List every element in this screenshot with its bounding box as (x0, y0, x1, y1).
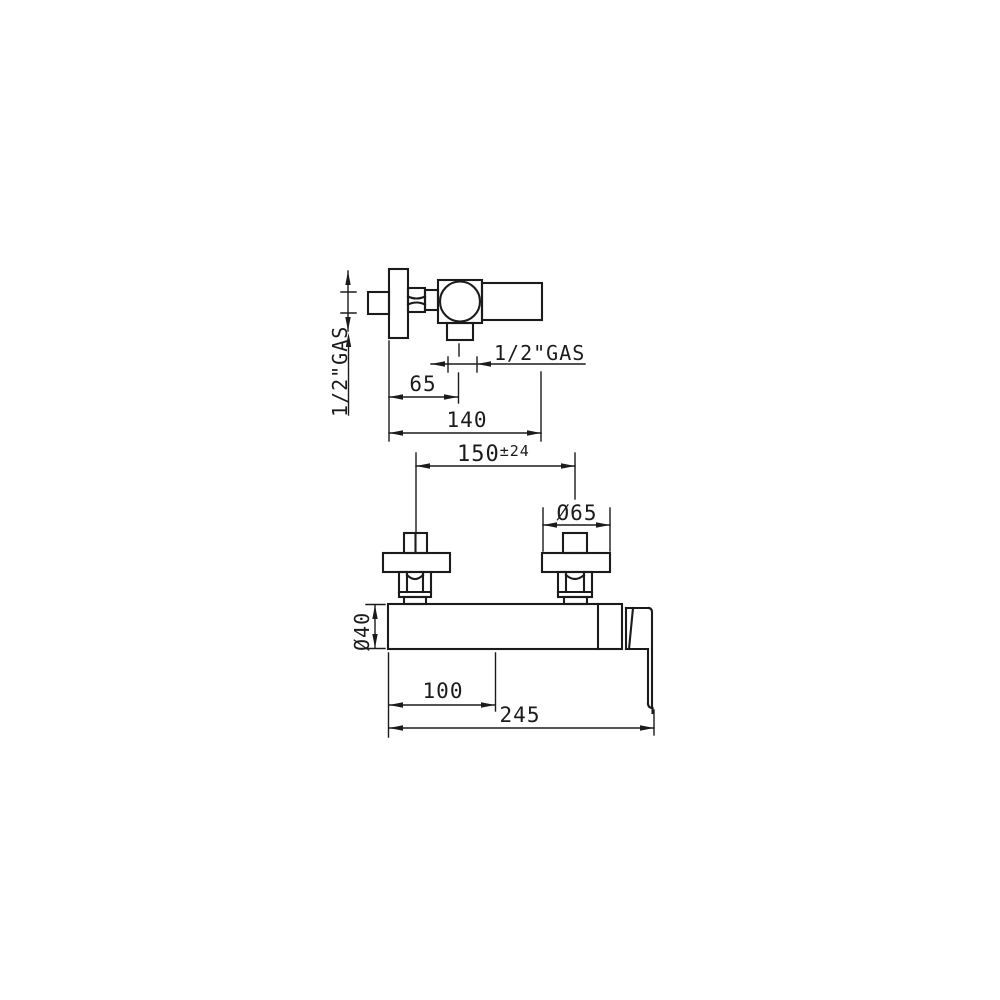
right-mounting-flange (542, 553, 610, 572)
spacer (425, 290, 438, 310)
dimension-150: 150±24 (416, 442, 575, 533)
lever-handle (626, 608, 653, 713)
wall-plate (389, 269, 408, 338)
control-knob-circle (440, 282, 480, 322)
valve-body-extension (482, 283, 542, 320)
outlet-port (447, 323, 473, 340)
handle-wedge-line (629, 608, 633, 649)
right-hex-nut-facet (566, 575, 584, 579)
left-hex-nut-facet (407, 575, 423, 579)
dimension-inlet-gas: 1/2"GAS (328, 271, 356, 417)
drawing-canvas: 1/2"GAS 1/2"GAS 65 140 (0, 0, 1000, 1000)
dim-140-label: 140 (447, 408, 488, 432)
right-hex-nut (558, 572, 592, 597)
technical-drawing: 1/2"GAS 1/2"GAS 65 140 (0, 0, 1000, 1000)
dim-100-label: 100 (423, 679, 464, 703)
inlet-gas-label: 1/2"GAS (328, 326, 352, 417)
outlet-gas-label: 1/2"GAS (494, 341, 585, 365)
dim-65-label: 65 (409, 372, 436, 396)
left-hex-nut (399, 572, 431, 597)
dim-flange-diameter-label: Ø65 (557, 501, 598, 525)
connector-nut (408, 288, 425, 312)
dimension-outlet-gas: 1/2"GAS (431, 341, 585, 372)
dimension-flange-diameter: Ø65 (543, 501, 610, 551)
left-mounting-flange (383, 553, 450, 572)
mixer-body (388, 604, 622, 649)
side-view: 1/2"GAS 1/2"GAS 65 140 (328, 269, 585, 441)
right-inlet-stub (563, 533, 587, 553)
dim-150-label: 150±24 (457, 442, 530, 467)
connector-nut-facet (408, 303, 425, 305)
connector-nut-facet (408, 297, 425, 299)
inlet-stub (368, 292, 389, 314)
front-view: 150±24 Ø65 (350, 442, 654, 737)
dimension-100: 100 (389, 653, 496, 737)
valve-housing (438, 280, 482, 323)
dim-245-label: 245 (500, 703, 541, 727)
dimension-body-diameter: Ø40 (350, 605, 385, 652)
dimension-245: 245 (389, 703, 654, 735)
dim-body-diameter-label: Ø40 (350, 612, 374, 651)
